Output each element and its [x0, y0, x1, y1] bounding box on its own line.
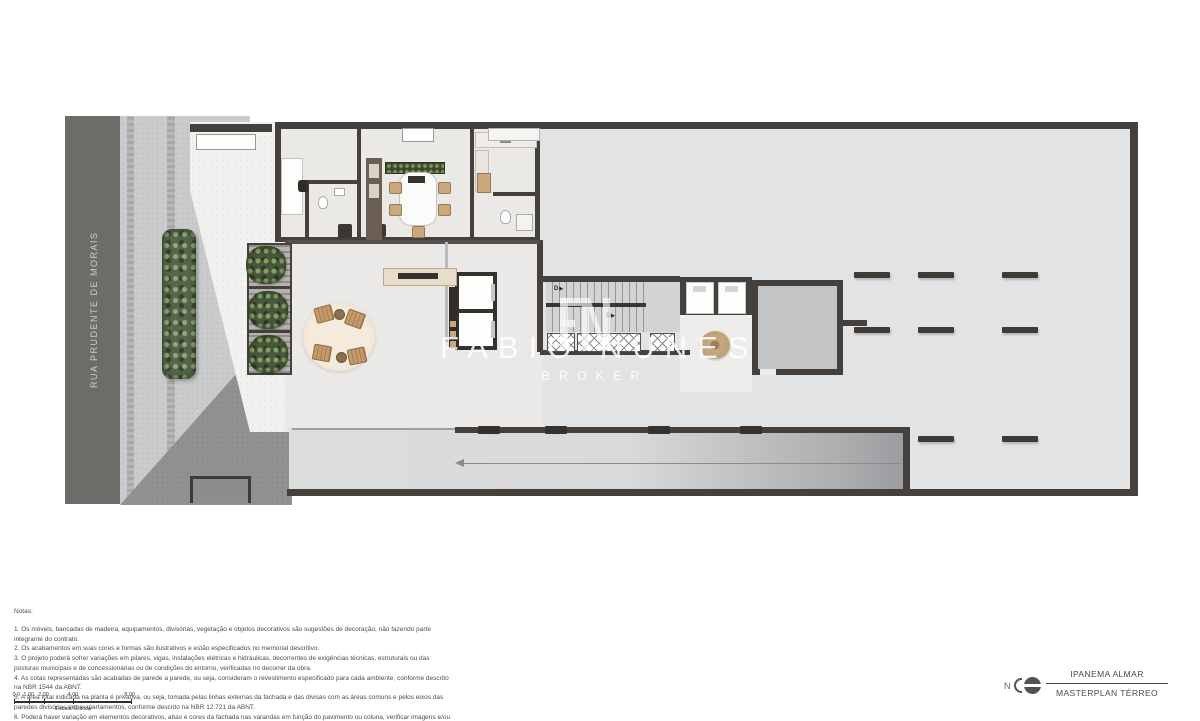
column-marker	[1002, 436, 1038, 442]
service-room	[752, 280, 843, 375]
facade-niche	[402, 128, 434, 142]
scale-tick-label: 2.00	[38, 692, 49, 698]
shower-box	[516, 214, 533, 231]
office-chair	[298, 180, 308, 192]
masterplan-sheet: RUA PRUDENTE DE MORAIS D ▶ S ▶	[0, 0, 1200, 721]
seat	[477, 173, 491, 193]
entry-awning	[196, 134, 256, 150]
column-marker	[854, 272, 890, 278]
stair-down-label: D ▶	[554, 286, 563, 292]
scale-tick	[44, 699, 45, 704]
note-item: 2. Os acabamentos em suas cores e formas…	[14, 644, 452, 654]
table-object	[408, 176, 425, 183]
stair-down-letter: D	[554, 286, 558, 292]
scale-tick	[29, 699, 30, 704]
ramp-wall	[903, 427, 910, 495]
restroom-door	[686, 282, 714, 314]
scale-tick-label: 4.00	[68, 692, 79, 698]
note-item: 4. As cotas representadas são acabadas d…	[14, 674, 452, 694]
north-compass-icon	[1014, 677, 1041, 695]
project-name: IPANEMA ALMAR	[1046, 669, 1168, 684]
elevator-cab	[459, 276, 493, 309]
note-item: 1. Os móveis, bancadas de madeira, equip…	[14, 625, 452, 645]
column-marker	[918, 327, 954, 333]
door-panel	[725, 286, 738, 292]
street-name-label: RUA PRUDENTE DE MORAIS	[65, 116, 123, 504]
facade-niche	[488, 128, 540, 141]
restroom-block	[680, 277, 752, 315]
scale-bar: 0.0 1.00 2.00 4.00 8.00 Escala Gráfica	[14, 692, 132, 714]
appliance	[369, 164, 379, 178]
wall-segment	[842, 320, 867, 326]
planter-shrub	[248, 335, 288, 373]
restroom-door	[718, 282, 746, 314]
scale-tick-label: 8.00	[124, 692, 135, 698]
side-table	[336, 352, 347, 363]
scale-caption: Escala Gráfica	[14, 706, 132, 712]
ramp-wall-tick	[545, 426, 567, 434]
service-room-door	[760, 369, 776, 375]
entry-overhang	[190, 124, 272, 132]
ramp-floor	[289, 428, 909, 492]
sink-fixture	[334, 188, 345, 196]
planter-rail	[247, 286, 292, 289]
title-block: IPANEMA ALMAR MASTERPLAN TÉRREO	[1046, 669, 1168, 698]
column-marker	[918, 436, 954, 442]
column-marker	[918, 272, 954, 278]
notes-heading: Notas:	[14, 607, 452, 617]
ramp-curb	[292, 428, 455, 430]
toilet-fixture	[318, 196, 328, 209]
scale-tick-label: 0.0	[13, 692, 21, 698]
planter-shrub	[248, 291, 288, 329]
scale-tick	[14, 699, 15, 704]
watermark-tagline: BROKER	[440, 369, 750, 383]
meeting-chair	[438, 204, 451, 216]
planter-rail	[247, 330, 292, 333]
meeting-chair	[412, 226, 425, 238]
wall-segment	[305, 180, 361, 184]
bench	[338, 224, 352, 238]
wall-segment	[493, 192, 538, 196]
terrace-chair	[312, 344, 333, 363]
planter-shrub	[246, 246, 286, 284]
wall-segment	[470, 124, 474, 239]
kitchen-cabinet	[366, 158, 382, 240]
mailbox-cell	[450, 321, 456, 327]
ramp-wall-tick	[740, 426, 762, 434]
note-item: 3. O projeto poderá sofrer variações em …	[14, 654, 452, 674]
wall-segment	[287, 489, 1138, 496]
compass-circle	[1024, 677, 1041, 694]
toilet-fixture	[500, 210, 511, 224]
ramp-wall-tick	[478, 426, 500, 434]
ramp-wall-tick	[648, 426, 670, 434]
scale-tick	[73, 699, 74, 704]
watermark-brand: FABIO NUNES	[440, 330, 750, 366]
sidewalk-strip	[127, 116, 134, 504]
ramp-wall	[455, 427, 910, 433]
scale-tick	[131, 699, 132, 704]
scale-labels: 0.0 1.00 2.00 4.00 8.00	[14, 692, 132, 699]
elevator-door	[491, 284, 495, 301]
driveway-curb	[190, 476, 251, 503]
north-letter: N	[1004, 681, 1011, 691]
meeting-chair	[389, 182, 402, 194]
scale-tick-label: 1.00	[23, 692, 34, 698]
ramp-direction-line	[462, 463, 902, 464]
wall-segment	[1130, 122, 1138, 495]
column-marker	[1002, 327, 1038, 333]
drawing-name: MASTERPLAN TÉRREO	[1046, 684, 1168, 698]
appliance	[369, 184, 379, 198]
meeting-chair	[438, 182, 451, 194]
glass-facade	[285, 240, 540, 244]
side-table	[334, 309, 345, 320]
compass-arc	[1014, 678, 1022, 693]
street-hedge	[162, 229, 196, 379]
stair-direction-arrow-icon: ▶	[559, 287, 563, 292]
column-marker	[854, 327, 890, 333]
door-panel	[693, 286, 706, 292]
meeting-chair	[389, 204, 402, 216]
ramp-arrow-icon	[455, 459, 464, 467]
column-marker	[1002, 272, 1038, 278]
glass-partition	[445, 242, 448, 342]
north-indicator: N	[1004, 676, 1044, 696]
sideboard-inset	[398, 273, 438, 279]
